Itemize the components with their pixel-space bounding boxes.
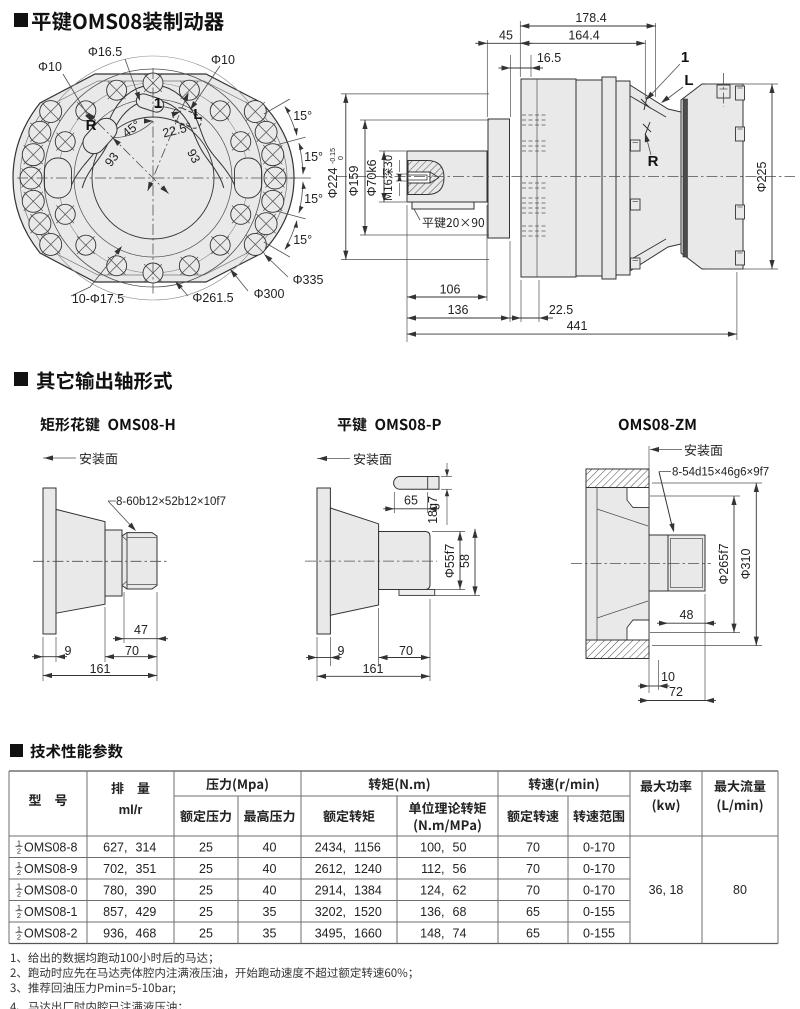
svg-text:314: 314 (136, 840, 157, 854)
svg-text:OMS08-0: OMS08-0 (24, 883, 78, 897)
svg-text:65: 65 (404, 494, 418, 508)
svg-text:936,: 936, (103, 926, 127, 940)
svg-text:100,: 100, (420, 840, 444, 854)
svg-text:L: L (684, 72, 693, 89)
svg-text:2434,: 2434, (315, 840, 346, 854)
svg-text:15°: 15° (304, 192, 323, 206)
svg-text:70: 70 (526, 840, 540, 854)
svg-text:40: 40 (263, 883, 277, 897)
svg-text:Φ159: Φ159 (347, 166, 361, 197)
svg-text:468: 468 (136, 926, 157, 940)
svg-text:10-Φ17.5: 10-Φ17.5 (72, 292, 124, 306)
svg-text:22.5: 22.5 (549, 303, 573, 317)
svg-text:35: 35 (263, 926, 277, 940)
svg-text:OMS08-8: OMS08-8 (24, 840, 78, 854)
svg-text:70: 70 (399, 644, 413, 658)
svg-text:10: 10 (661, 670, 675, 684)
svg-text:0-170: 0-170 (583, 840, 615, 854)
svg-text:Φ300: Φ300 (254, 287, 285, 301)
svg-text:R: R (86, 117, 97, 134)
svg-text:0-170: 0-170 (583, 862, 615, 876)
svg-text:780,: 780, (103, 883, 127, 897)
svg-text:9: 9 (338, 644, 345, 658)
svg-text:70: 70 (125, 644, 139, 658)
svg-text:15°: 15° (304, 150, 323, 164)
svg-text:40: 40 (263, 862, 277, 876)
svg-text:35: 35 (263, 905, 277, 919)
svg-text:15°: 15° (293, 233, 312, 247)
svg-text:25: 25 (199, 883, 213, 897)
svg-text:2: 2 (17, 932, 21, 941)
svg-text:25: 25 (199, 905, 213, 919)
svg-text:68: 68 (453, 905, 467, 919)
svg-text:48: 48 (680, 608, 694, 622)
svg-text:0-155: 0-155 (583, 905, 615, 919)
svg-text:161: 161 (90, 662, 111, 676)
svg-text:Φ261.5: Φ261.5 (192, 291, 233, 305)
svg-text:40: 40 (263, 840, 277, 854)
svg-text:Φ10: Φ10 (211, 53, 235, 67)
svg-text:15°: 15° (293, 109, 312, 123)
svg-text:148,: 148, (420, 926, 444, 940)
svg-text:OMS08-2: OMS08-2 (24, 926, 78, 940)
svg-text:178.4: 178.4 (575, 11, 606, 25)
svg-text:161: 161 (363, 662, 384, 676)
svg-text:1240: 1240 (354, 862, 382, 876)
svg-text:2: 2 (17, 889, 21, 898)
svg-text:1156: 1156 (354, 840, 381, 854)
svg-text:Φ16.5: Φ16.5 (88, 45, 122, 59)
svg-text:Φ55f7: Φ55f7 (443, 544, 457, 578)
svg-text:18g7: 18g7 (426, 496, 440, 524)
svg-text:112,: 112, (421, 862, 444, 876)
svg-text:1: 1 (154, 95, 162, 112)
svg-text:1520: 1520 (354, 905, 382, 919)
svg-text:441: 441 (567, 319, 588, 333)
svg-text:65: 65 (526, 905, 540, 919)
svg-text:62: 62 (453, 883, 467, 897)
svg-text:136: 136 (448, 303, 469, 317)
svg-text:80: 80 (733, 883, 747, 897)
svg-text:8-54d15×46g6×9f7: 8-54d15×46g6×9f7 (672, 467, 769, 479)
svg-text:OMS08-9: OMS08-9 (24, 862, 78, 876)
svg-text:3202,: 3202, (315, 905, 346, 919)
svg-text:Φ335: Φ335 (293, 273, 324, 287)
svg-text:Φ310: Φ310 (739, 549, 753, 580)
svg-text:L: L (193, 106, 202, 123)
svg-text:Φ10: Φ10 (38, 60, 62, 74)
svg-text:1660: 1660 (354, 926, 382, 940)
svg-text:0-155: 0-155 (583, 926, 615, 940)
svg-text:Φ265f7: Φ265f7 (717, 543, 731, 584)
svg-text:47: 47 (134, 623, 148, 637)
svg-text:124,: 124, (420, 883, 444, 897)
svg-text:36, 18: 36, 18 (649, 883, 684, 897)
svg-text:56: 56 (453, 862, 467, 876)
svg-text:74: 74 (453, 926, 467, 940)
svg-text:0-170: 0-170 (583, 883, 615, 897)
svg-text:702,: 702, (103, 862, 127, 876)
svg-text:2: 2 (17, 846, 21, 855)
svg-text:857,: 857, (103, 905, 127, 919)
svg-text:25: 25 (199, 926, 213, 940)
svg-text:2914,: 2914, (315, 883, 346, 897)
svg-text:8-60b12×52b12×10f7: 8-60b12×52b12×10f7 (116, 496, 226, 508)
svg-text:390: 390 (136, 883, 157, 897)
svg-text:164.4: 164.4 (568, 29, 599, 43)
svg-text:25: 25 (199, 840, 213, 854)
svg-text:9: 9 (65, 644, 72, 658)
svg-text:72: 72 (669, 685, 683, 699)
svg-text:429: 429 (136, 905, 157, 919)
svg-text:OMS08-1: OMS08-1 (24, 905, 78, 919)
svg-text:Φ224: Φ224 (326, 168, 340, 199)
svg-text:58: 58 (458, 554, 472, 568)
svg-text:106: 106 (440, 283, 461, 297)
svg-text:65: 65 (526, 926, 540, 940)
svg-text:2: 2 (17, 911, 21, 920)
svg-text:R: R (648, 153, 659, 170)
svg-text:1384: 1384 (354, 883, 382, 897)
svg-text:2612,: 2612, (315, 862, 346, 876)
svg-text:351: 351 (136, 862, 157, 876)
svg-text:1: 1 (681, 49, 689, 66)
svg-text:25: 25 (199, 862, 213, 876)
svg-text:16.5: 16.5 (537, 51, 561, 65)
svg-text:45: 45 (499, 29, 513, 43)
svg-text:627,: 627, (103, 840, 127, 854)
svg-text:2: 2 (17, 868, 21, 877)
svg-text:136,: 136, (420, 905, 444, 919)
svg-text:Φ225: Φ225 (755, 162, 769, 193)
svg-text:70: 70 (526, 883, 540, 897)
svg-text:3495,: 3495, (315, 926, 346, 940)
svg-text:70: 70 (526, 862, 540, 876)
svg-text:Φ70k6: Φ70k6 (365, 159, 379, 196)
svg-text:0: 0 (338, 156, 345, 160)
svg-text:ml/r: ml/r (119, 802, 143, 817)
svg-text:50: 50 (453, 840, 467, 854)
svg-text:-0.15: -0.15 (330, 148, 337, 164)
